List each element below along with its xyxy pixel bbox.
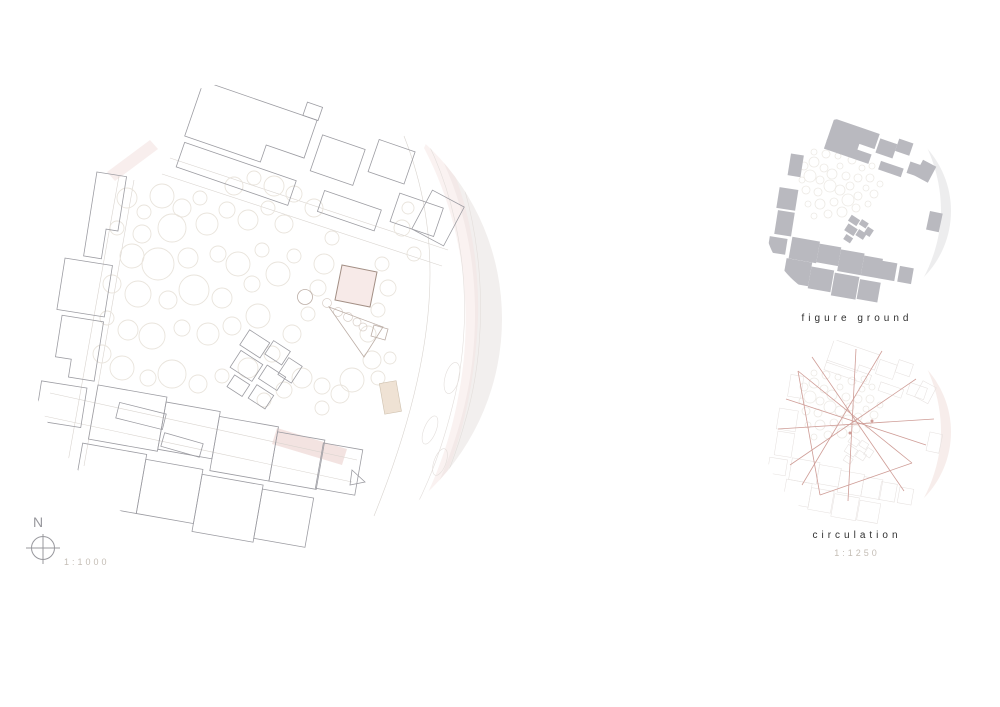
figure-ground-drawing — [762, 116, 952, 306]
main-scale-label: 1:1000 — [64, 557, 110, 567]
north-arrow-icon — [24, 533, 62, 567]
presentation-sheet: N 1:1000 figure ground — [0, 0, 1000, 707]
figure-ground-map — [762, 116, 952, 306]
figure-ground-label: figure ground — [762, 313, 952, 324]
circulation-label: circulation — [762, 530, 952, 541]
north-label: N — [33, 514, 43, 530]
circulation-drawing — [762, 337, 952, 527]
site-plan-drawing — [22, 78, 504, 560]
circulation-scale-label: 1:1250 — [762, 548, 952, 558]
circulation-map — [762, 337, 952, 527]
